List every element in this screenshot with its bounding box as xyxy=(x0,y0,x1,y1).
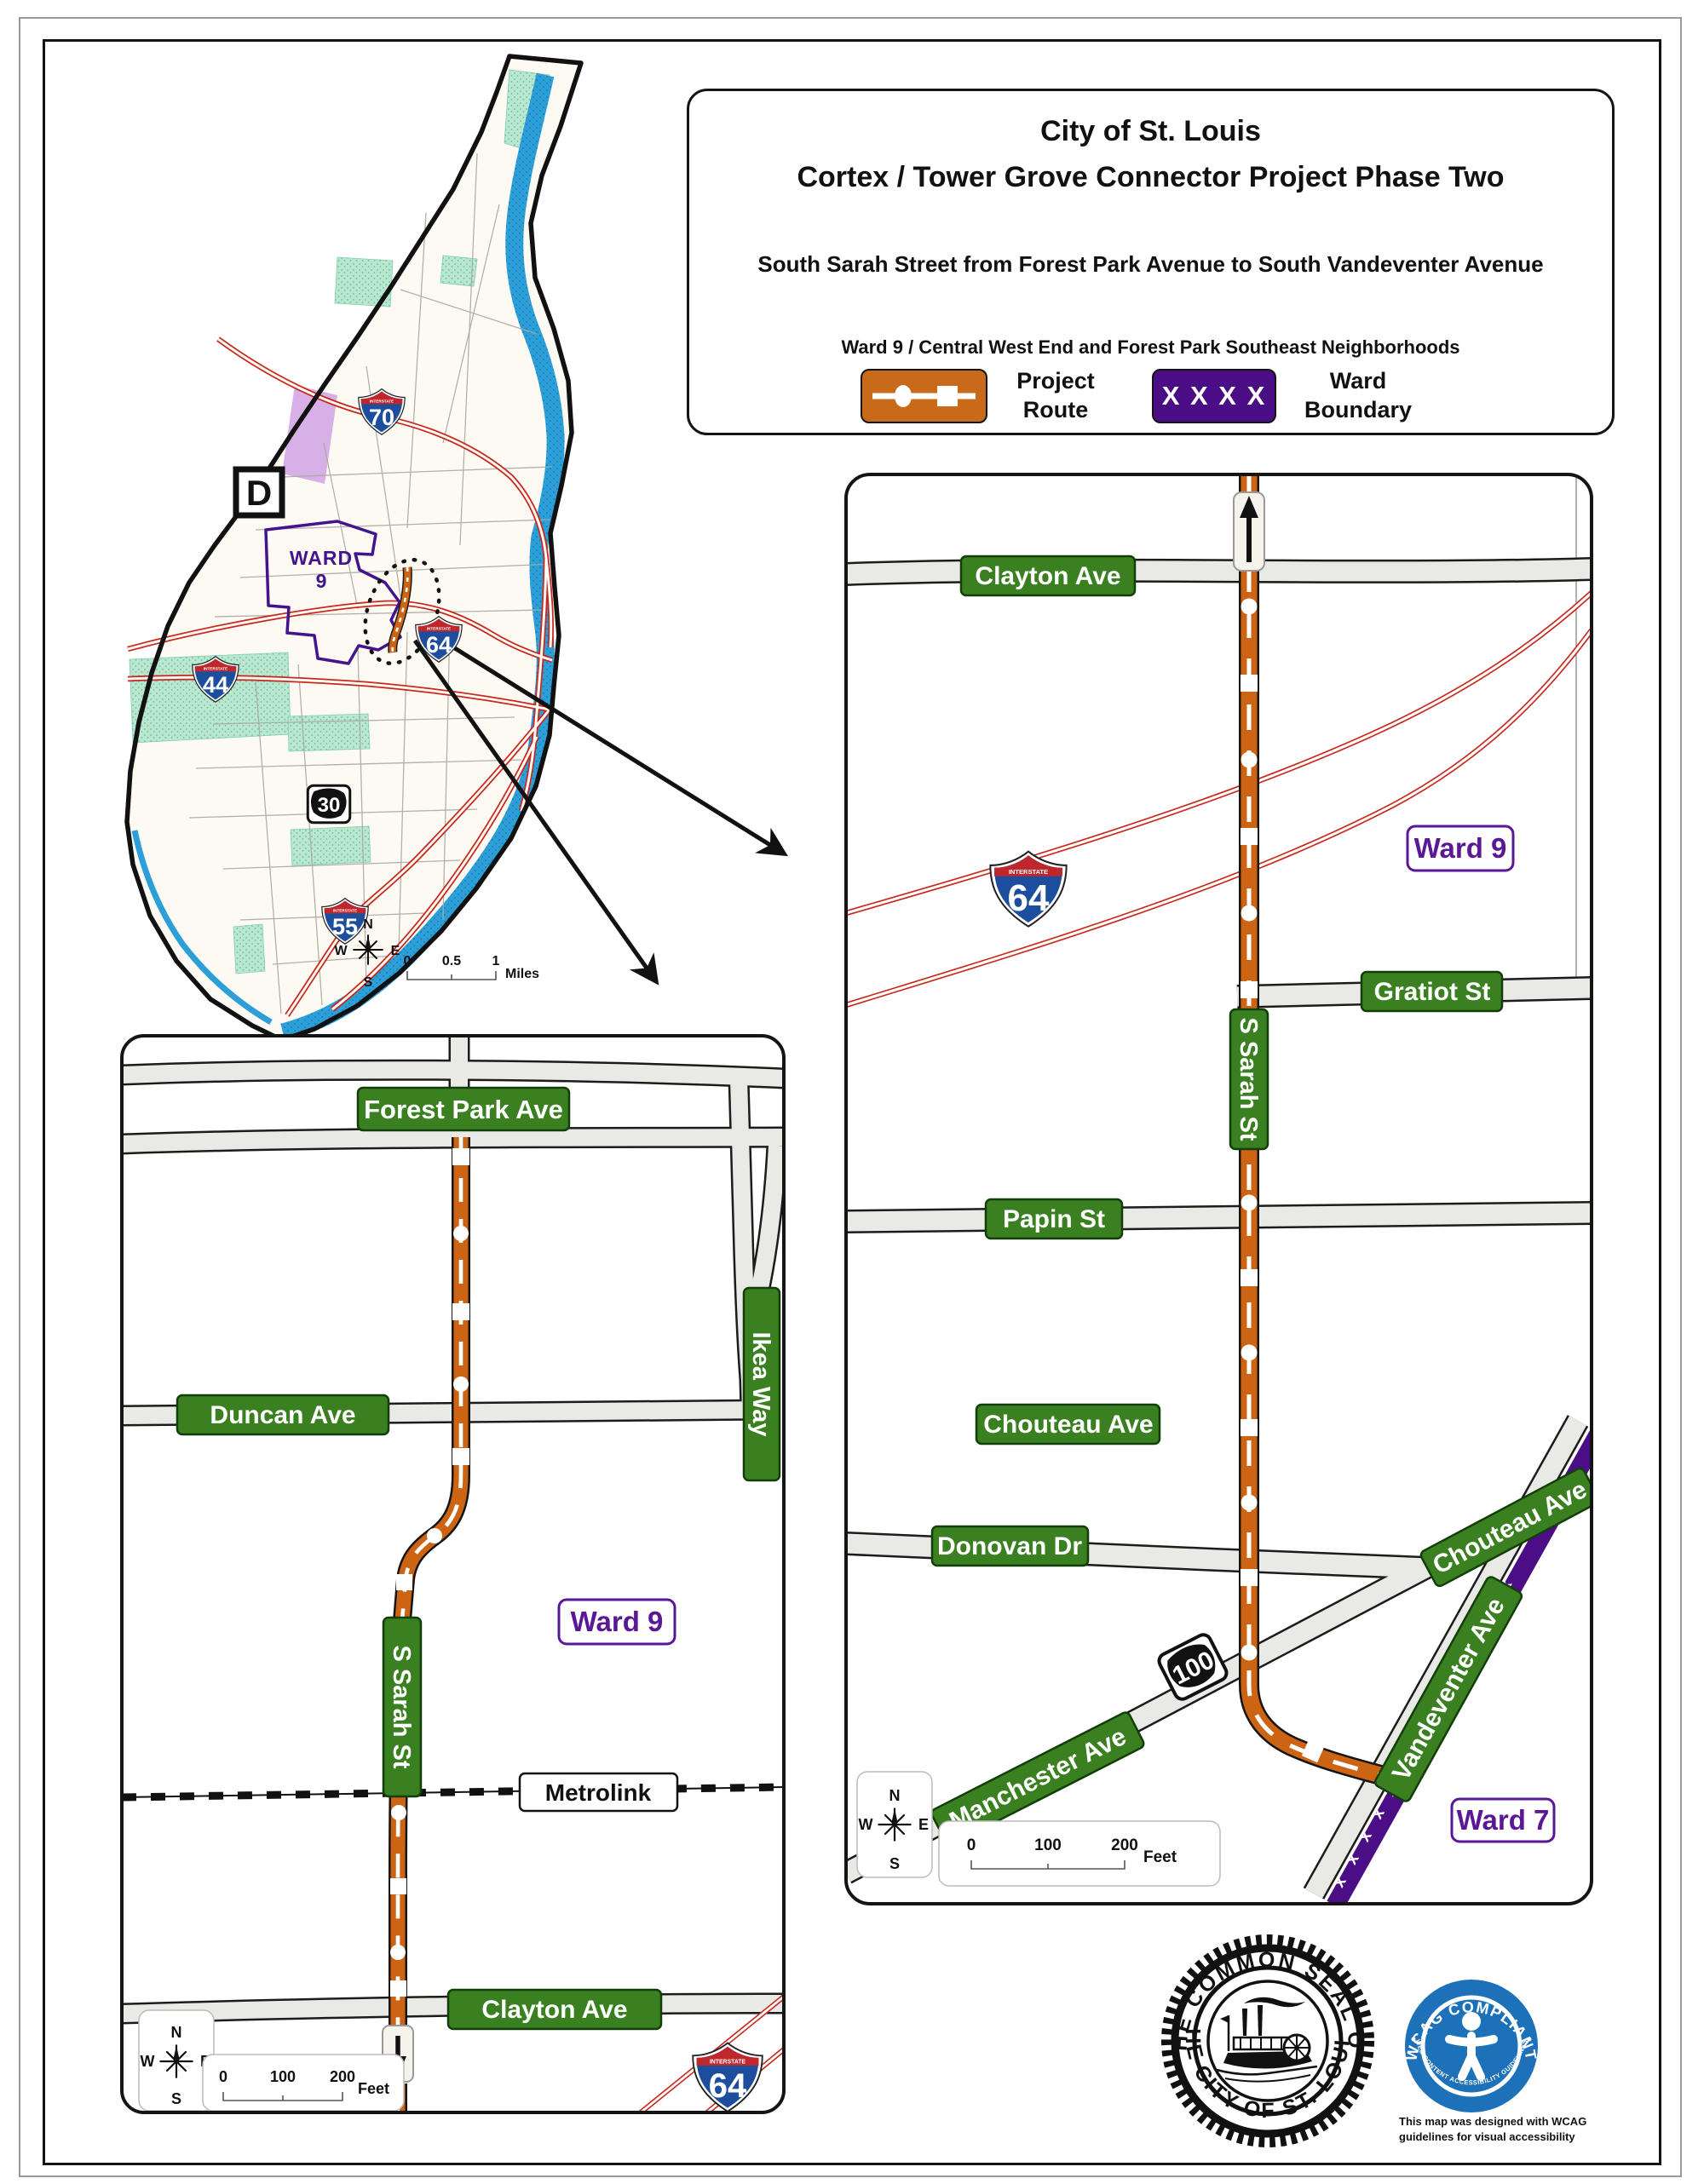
svg-text:200: 200 xyxy=(330,2068,355,2085)
city-seal: THE COMMON SEAL OF THE CITY OF ST. LOUIS… xyxy=(1157,1930,1379,2152)
svg-text:S: S xyxy=(364,975,373,990)
svg-text:Feet: Feet xyxy=(1143,1848,1177,1866)
svg-text:100: 100 xyxy=(270,2068,296,2085)
svg-text:S: S xyxy=(889,1855,900,1872)
svg-text:Gratiot St: Gratiot St xyxy=(1374,978,1491,1006)
ward9-label-right: Ward 9 xyxy=(1408,826,1513,871)
svg-text:64: 64 xyxy=(709,2067,747,2105)
svg-text:Ward 9: Ward 9 xyxy=(1414,832,1507,864)
svg-text:Clayton Ave: Clayton Ave xyxy=(975,562,1120,590)
svg-text:1: 1 xyxy=(492,954,500,968)
svg-text:0: 0 xyxy=(404,954,412,968)
ward-boundary-swatch: X X X X xyxy=(1152,369,1276,423)
svg-text:S Sarah St: S Sarah St xyxy=(388,1645,415,1768)
svg-text:Feet: Feet xyxy=(358,2080,389,2097)
svg-text:Miles: Miles xyxy=(505,967,539,981)
ikea-way-sign: Ikea Way xyxy=(744,1288,780,1480)
ward9-overview-number: 9 xyxy=(316,570,327,592)
ward7-label: Ward 7 xyxy=(1452,1799,1554,1842)
svg-text:N: N xyxy=(363,917,373,932)
svg-text:Ikea Way: Ikea Way xyxy=(747,1331,774,1436)
map-sheet: INTERSTATE xyxy=(0,0,1704,2184)
svg-text:0: 0 xyxy=(967,1836,976,1854)
forest-park-ave-sign: Forest Park Ave xyxy=(358,1088,569,1130)
svg-text:55: 55 xyxy=(332,914,358,940)
ward9-overview-label: WARD xyxy=(290,547,353,569)
project-extent: South Sarah Street from Forest Park Aven… xyxy=(689,251,1612,278)
svg-text:Ward 9: Ward 9 xyxy=(571,1606,664,1637)
d-route-marker: D xyxy=(236,469,282,515)
legend: Project Route X X X X Ward Boundary xyxy=(689,365,1612,425)
svg-text:64: 64 xyxy=(426,632,452,658)
svg-text:E: E xyxy=(918,1816,929,1833)
svg-text:0: 0 xyxy=(219,2068,227,2085)
project-route-symbol xyxy=(862,371,986,422)
svg-text:S Sarah St: S Sarah St xyxy=(1235,1017,1262,1141)
svg-text:S: S xyxy=(171,2090,181,2107)
wcag-caption-line1: This map was designed with WCAG xyxy=(1399,2114,1680,2129)
svg-text:D: D xyxy=(246,473,272,513)
duncan-ave-sign: Duncan Ave xyxy=(177,1395,389,1434)
svg-text:W: W xyxy=(141,2053,155,2070)
metrolink-sign: Metrolink xyxy=(520,1773,677,1811)
svg-text:Metrolink: Metrolink xyxy=(545,1779,652,1806)
svg-text:Papin St: Papin St xyxy=(1003,1205,1105,1233)
ward9-label-left: Ward 9 xyxy=(559,1600,675,1644)
svg-text:100: 100 xyxy=(1034,1836,1062,1854)
svg-text:W: W xyxy=(334,944,348,958)
ward-boundary-label: Ward Boundary xyxy=(1286,367,1431,425)
svg-text:N: N xyxy=(171,2024,182,2041)
right-map-compass: N E S W xyxy=(857,1772,932,1877)
svg-text:44: 44 xyxy=(203,672,228,698)
svg-text:0.5: 0.5 xyxy=(442,954,461,968)
svg-text:70: 70 xyxy=(369,405,394,430)
wcag-caption: This map was designed with WCAG guidelin… xyxy=(1399,2114,1680,2144)
svg-text:64: 64 xyxy=(1008,877,1050,919)
svg-text:N: N xyxy=(889,1787,901,1804)
map-title: City of St. Louis xyxy=(689,115,1612,148)
left-map-scale-bar: 0 100 200 Feet xyxy=(203,2055,404,2111)
project-title: Cortex / Tower Grove Connector Project P… xyxy=(689,161,1612,194)
svg-text:W: W xyxy=(859,1816,873,1833)
s-sarah-st-sign-left: S Sarah St xyxy=(383,1618,421,1796)
svg-text:200: 200 xyxy=(1111,1836,1138,1854)
papin-st-sign: Papin St xyxy=(986,1199,1122,1239)
svg-text:30: 30 xyxy=(318,794,341,817)
svg-text:Ward 7: Ward 7 xyxy=(1457,1804,1550,1836)
left-detail-map: 64 Forest Park Ave Ikea Way Duncan Ave xyxy=(111,1026,797,2127)
right-detail-map: x x x x x x x x x x x x x x x xyxy=(835,464,1606,1921)
wcag-badge: WCAG COMPLIANT WEB CONTENT ACCESSIBILITY… xyxy=(1402,1976,1541,2116)
neighborhoods-line: Ward 9 / Central West End and Forest Par… xyxy=(689,336,1612,359)
svg-text:Duncan Ave: Duncan Ave xyxy=(210,1401,355,1429)
svg-text:E: E xyxy=(391,944,400,958)
svg-text:Forest Park Ave: Forest Park Ave xyxy=(364,1095,563,1124)
svg-text:Chouteau Ave: Chouteau Ave xyxy=(983,1411,1153,1439)
title-box: City of St. Louis Cortex / Tower Grove C… xyxy=(687,89,1615,435)
clayton-ave-sign: Clayton Ave xyxy=(961,556,1135,595)
svg-text:Clayton Ave: Clayton Ave xyxy=(481,1996,627,2024)
donovan-dr-sign: Donovan Dr xyxy=(932,1526,1088,1566)
overview-scale-bar: 0 0.5 1 Miles xyxy=(404,954,540,981)
project-route-swatch xyxy=(861,369,987,423)
right-map-scale-bar: 0 100 200 Feet xyxy=(939,1821,1220,1886)
chouteau-ave-sign: Chouteau Ave xyxy=(976,1405,1160,1444)
clayton-ave-sign-left: Clayton Ave xyxy=(448,1990,661,2029)
north-arrow xyxy=(1234,492,1264,571)
s-sarah-st-sign: S Sarah St xyxy=(1230,1009,1268,1149)
route30-marker: 30 xyxy=(308,785,350,823)
wcag-caption-line2: guidelines for visual accessibility xyxy=(1399,2129,1680,2145)
project-route-label: Project Route xyxy=(996,367,1115,425)
svg-text:Donovan Dr: Donovan Dr xyxy=(937,1532,1082,1560)
gratiot-st-sign: Gratiot St xyxy=(1361,972,1502,1011)
